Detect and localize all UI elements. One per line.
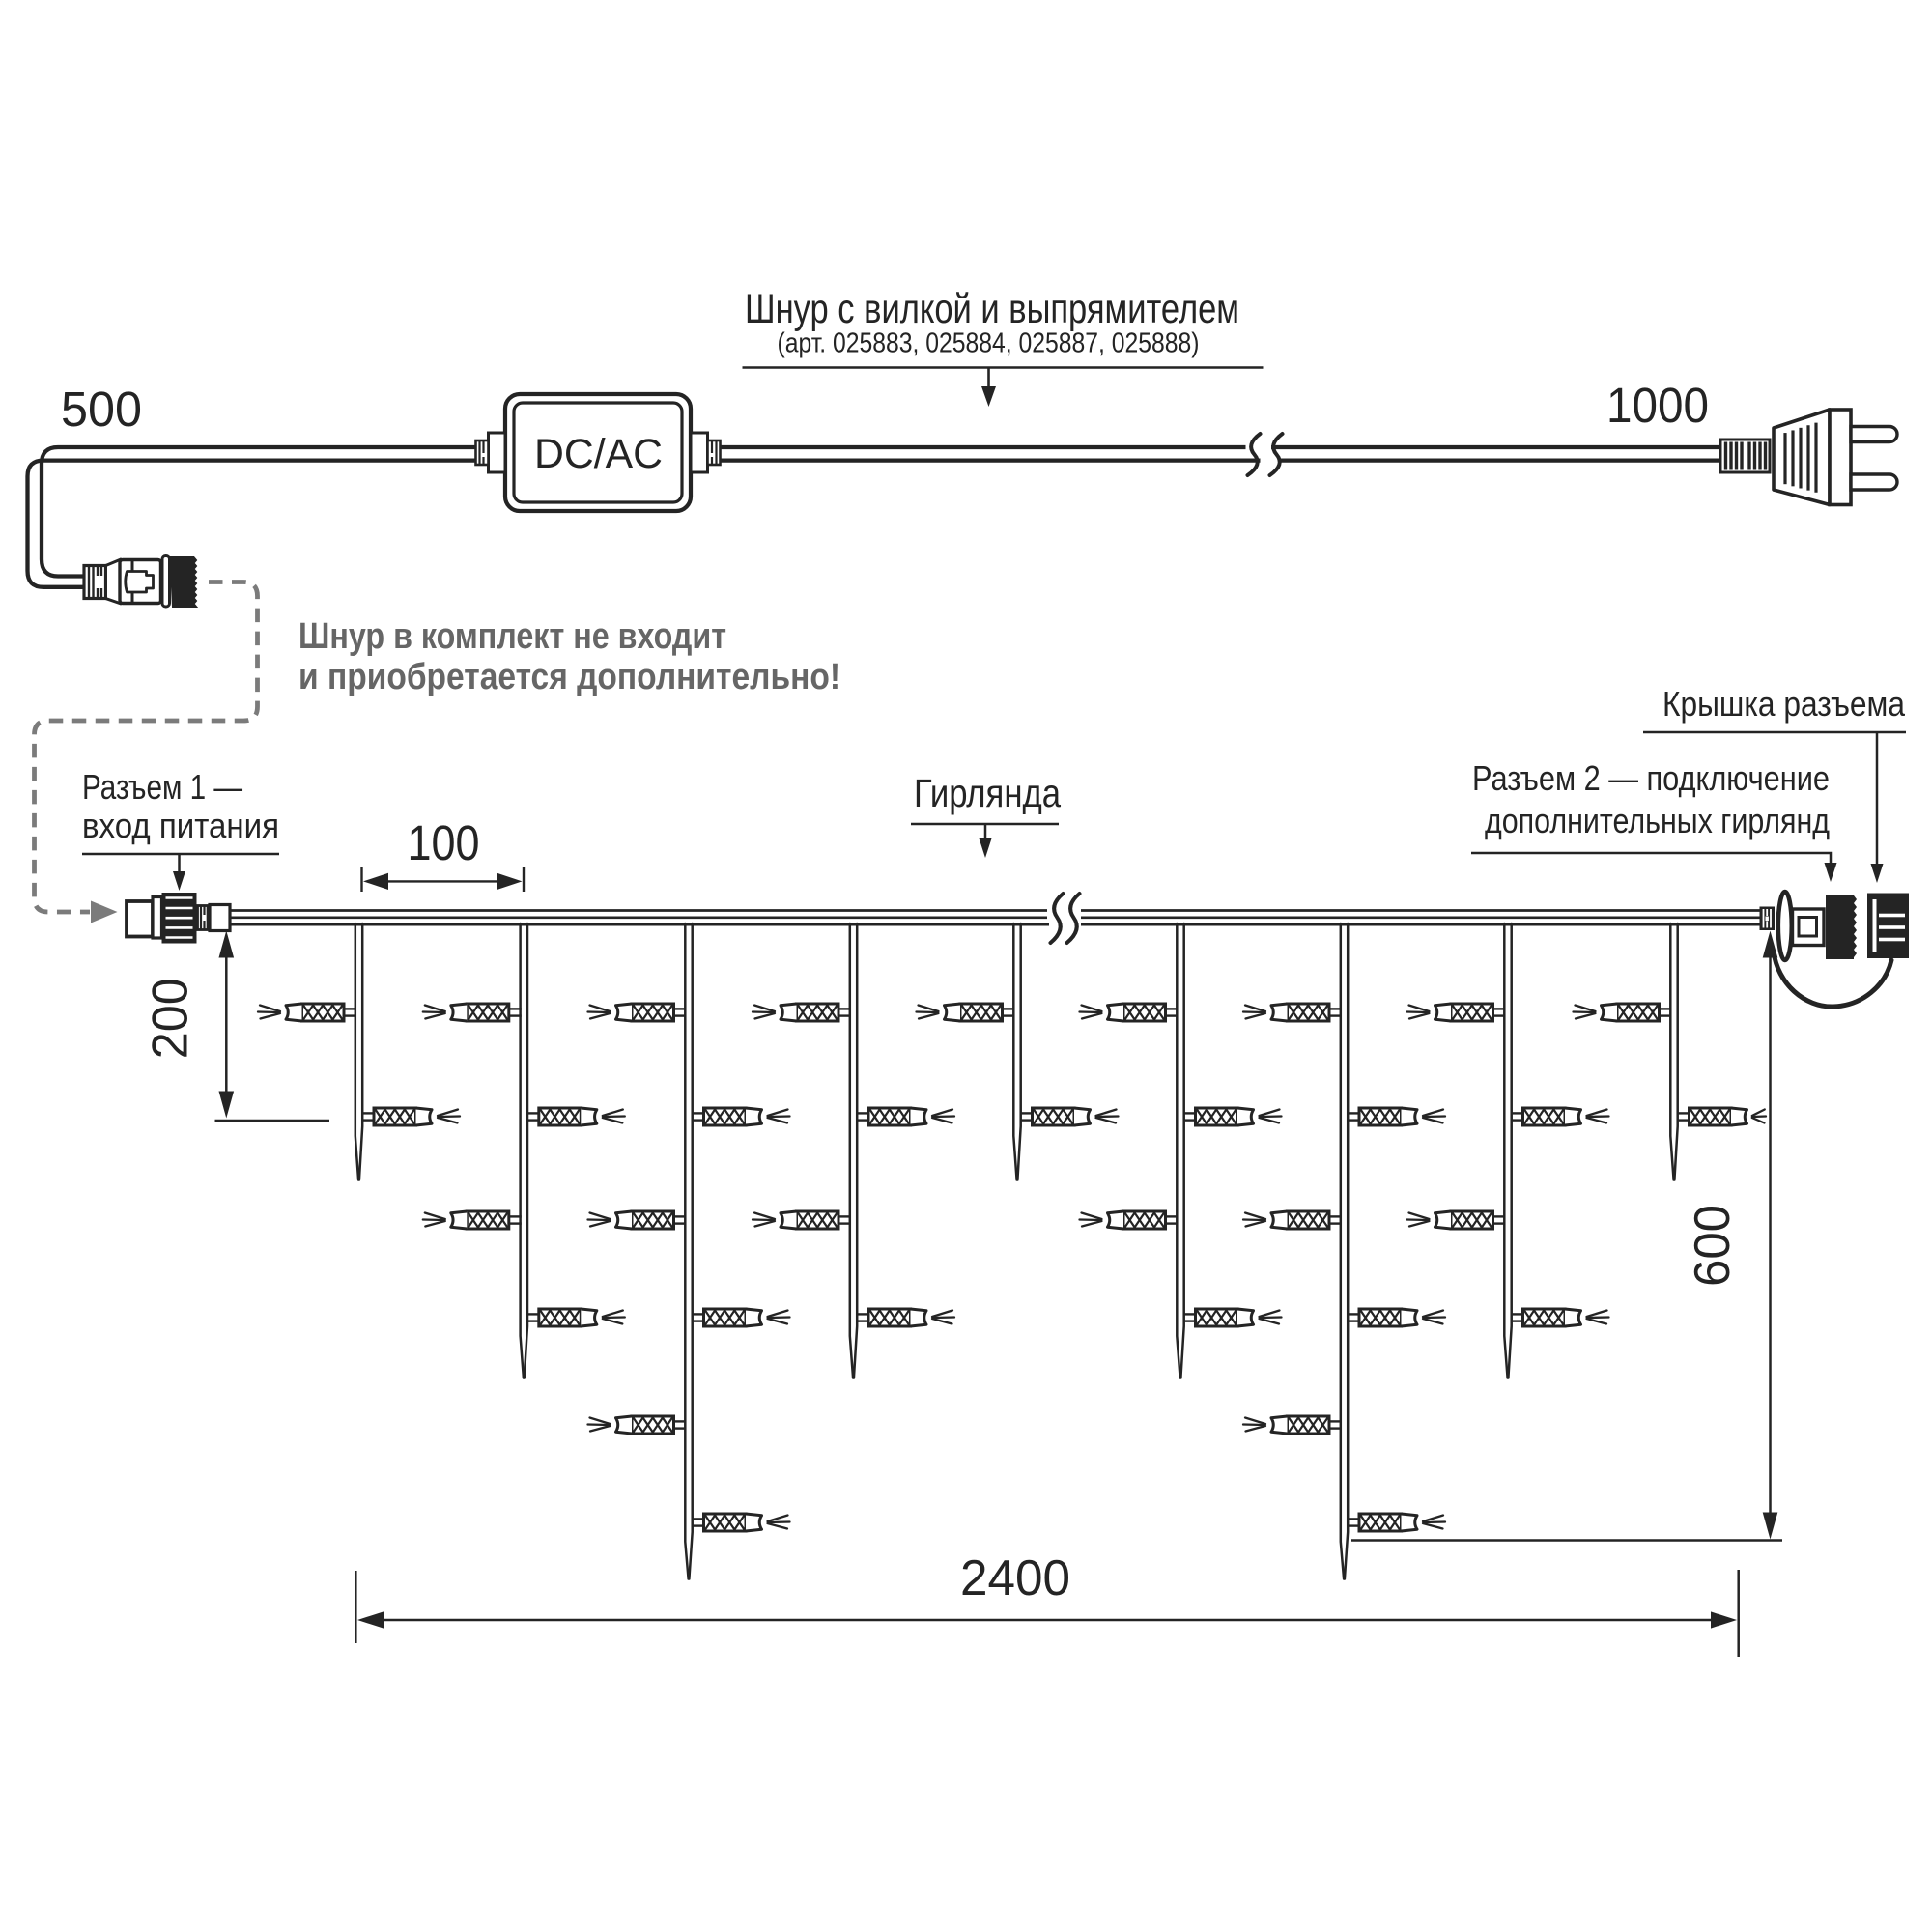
svg-text:Шнур с вилкой и выпрямителем: Шнур с вилкой и выпрямителем	[745, 286, 1239, 332]
svg-text:Разъем 1 —: Разъем 1 —	[82, 767, 242, 807]
svg-text:и приобретается дополнительно!: и приобретается дополнительно!	[298, 657, 840, 697]
svg-text:Гирлянда: Гирлянда	[914, 771, 1061, 815]
svg-text:600: 600	[1685, 1205, 1741, 1287]
svg-text:1000: 1000	[1606, 378, 1709, 433]
svg-text:500: 500	[61, 382, 142, 437]
svg-text:Крышка разъема: Крышка разъема	[1662, 684, 1906, 724]
svg-text:вход питания: вход питания	[82, 806, 279, 845]
svg-text:DC/AC: DC/AC	[534, 431, 663, 477]
svg-text:200: 200	[143, 978, 199, 1059]
svg-text:Шнур в комплект не входит: Шнур в комплект не входит	[298, 616, 726, 657]
svg-text:дополнительных гирлянд: дополнительных гирлянд	[1485, 801, 1830, 840]
svg-text:100: 100	[408, 815, 480, 870]
svg-text:Разъем 2 — подключение: Разъем 2 — подключение	[1472, 758, 1830, 798]
svg-text:(арт. 025883, 025884, 025887,: (арт. 025883, 025884, 025887, 025888)	[778, 328, 1200, 359]
svg-text:2400: 2400	[960, 1550, 1070, 1606]
